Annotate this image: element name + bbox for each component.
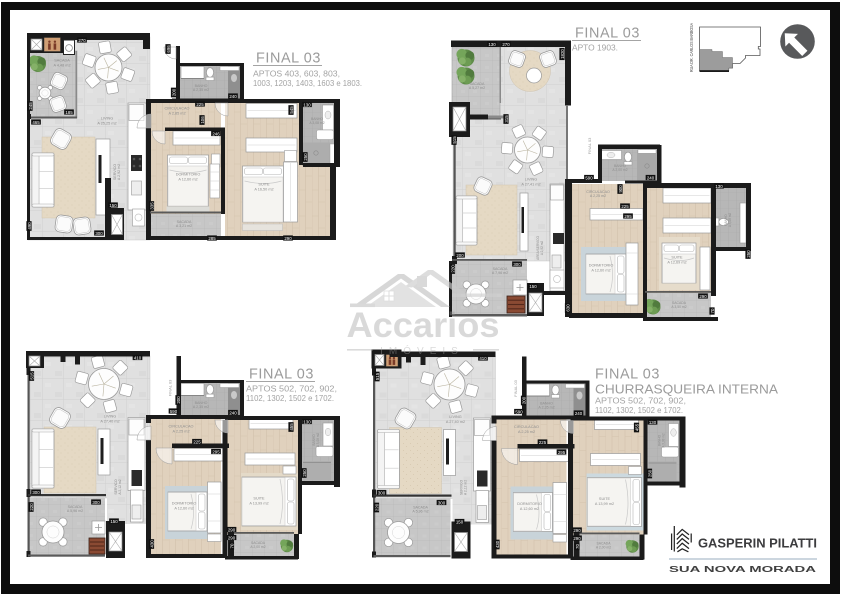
svg-text:A 2,25 m2: A 2,25 m2: [590, 194, 606, 198]
svg-text:696: 696: [166, 45, 171, 53]
svg-text:130: 130: [715, 184, 723, 189]
svg-text:DORMITORIO: DORMITORIO: [172, 502, 197, 506]
svg-text:290: 290: [573, 528, 581, 533]
svg-text:220: 220: [29, 503, 34, 511]
svg-text:A 3,50 m2: A 3,50 m2: [671, 305, 686, 309]
svg-text:295: 295: [212, 449, 220, 454]
svg-text:CHURRASQUEIRA INTERNA: CHURRASQUEIRA INTERNA: [595, 382, 778, 397]
svg-text:A 2,12 m2: A 2,12 m2: [118, 479, 122, 494]
svg-text:LIVING: LIVING: [104, 415, 116, 419]
svg-text:APTOS 502, 702, 902,: APTOS 502, 702, 902,: [595, 396, 686, 406]
svg-text:200: 200: [521, 396, 526, 404]
svg-text:315: 315: [504, 115, 509, 123]
svg-text:IMÓVEIS: IMÓVEIS: [380, 344, 464, 357]
svg-text:240: 240: [575, 411, 583, 416]
svg-text:A 27,40 m2: A 27,40 m2: [446, 420, 465, 424]
svg-text:225: 225: [539, 440, 547, 445]
svg-text:130: 130: [303, 102, 311, 107]
svg-text:GASPERIN PILATTI: GASPERIN PILATTI: [698, 536, 817, 551]
svg-text:A 12,60 m2: A 12,60 m2: [178, 177, 197, 181]
svg-text:225: 225: [193, 439, 201, 444]
svg-text:225: 225: [621, 204, 629, 209]
svg-text:300: 300: [438, 500, 446, 505]
svg-text:410: 410: [479, 356, 487, 361]
svg-text:A 4,48 m2: A 4,48 m2: [53, 63, 70, 67]
svg-text:A 13,99 m2: A 13,99 m2: [249, 501, 268, 505]
svg-text:A 2,00 m2: A 2,00 m2: [250, 545, 265, 549]
svg-text:290: 290: [699, 294, 707, 299]
svg-text:515: 515: [375, 372, 380, 380]
svg-text:285: 285: [208, 236, 216, 241]
svg-text:A 12,60 m2: A 12,60 m2: [591, 268, 610, 272]
svg-text:70: 70: [575, 544, 580, 549]
svg-text:SACADA: SACADA: [470, 82, 485, 86]
svg-text:BANHO: BANHO: [195, 401, 208, 405]
svg-text:250: 250: [303, 153, 308, 161]
svg-text:295: 295: [624, 214, 632, 219]
svg-text:1102, 1302, 1502 e 1702.: 1102, 1302, 1502 e 1702.: [246, 393, 334, 403]
svg-text:270: 270: [502, 42, 510, 47]
svg-text:A 2,25 m2: A 2,25 m2: [518, 430, 535, 434]
svg-text:335: 335: [149, 202, 154, 210]
svg-text:290: 290: [284, 236, 292, 241]
svg-text:FINAL 03: FINAL 03: [249, 367, 314, 383]
svg-text:185: 185: [65, 110, 73, 115]
svg-text:SACADA: SACADA: [413, 505, 428, 509]
svg-text:250: 250: [647, 469, 652, 477]
svg-text:240: 240: [229, 410, 237, 415]
svg-text:APTOS 403, 603, 803,: APTOS 403, 603, 803,: [253, 69, 340, 79]
svg-text:A 2,85 m2: A 2,85 m2: [168, 111, 185, 115]
svg-text:A 2,35 m2: A 2,35 m2: [193, 405, 209, 409]
svg-text:200: 200: [171, 88, 176, 96]
svg-text:300: 300: [513, 262, 521, 267]
svg-text:SUITE: SUITE: [671, 256, 683, 260]
svg-text:CIRCULACAO: CIRCULACAO: [514, 425, 539, 429]
svg-text:270: 270: [78, 38, 86, 43]
svg-text:590: 590: [170, 409, 178, 414]
svg-text:APTO 1903.: APTO 1903.: [572, 43, 618, 53]
svg-text:220: 220: [450, 265, 455, 273]
svg-text:DORMITORIO: DORMITORIO: [589, 264, 614, 268]
svg-text:Accarios: Accarios: [347, 306, 500, 345]
svg-text:430: 430: [495, 540, 500, 548]
svg-text:A 12,69 m2: A 12,69 m2: [667, 260, 686, 264]
svg-text:455: 455: [289, 423, 294, 431]
svg-text:106: 106: [200, 116, 205, 124]
svg-text:70: 70: [229, 543, 234, 548]
svg-text:300: 300: [92, 500, 100, 505]
svg-text:FINAL 03: FINAL 03: [587, 137, 592, 155]
svg-text:CIRCULACAO: CIRCULACAO: [586, 190, 610, 194]
svg-text:200: 200: [176, 396, 181, 404]
svg-text:SUA NOVA MORADA: SUA NOVA MORADA: [669, 565, 817, 574]
svg-text:SACADA: SACADA: [54, 59, 70, 63]
svg-text:150: 150: [109, 203, 117, 208]
svg-text:590: 590: [585, 175, 593, 180]
svg-text:A 13,99 m2: A 13,99 m2: [595, 502, 614, 506]
svg-text:CIRCULACAO: CIRCULACAO: [169, 425, 194, 429]
svg-text:130: 130: [303, 419, 311, 424]
svg-text:A 2,12 m2: A 2,12 m2: [464, 480, 468, 495]
svg-text:FINAL 03: FINAL 03: [575, 26, 640, 42]
svg-text:1003, 1203, 1403, 1603 e 1803.: 1003, 1203, 1403, 1603 e 1803.: [253, 78, 362, 88]
svg-text:SUITE: SUITE: [253, 497, 265, 501]
svg-text:290: 290: [573, 536, 581, 541]
svg-text:A 12,60 m2: A 12,60 m2: [520, 507, 539, 511]
svg-text:225: 225: [196, 102, 204, 107]
svg-text:FINAL 03: FINAL 03: [256, 51, 321, 67]
svg-text:A 3,08 m2: A 3,08 m2: [661, 433, 665, 448]
svg-text:LIVING: LIVING: [449, 415, 461, 419]
svg-text:455: 455: [634, 423, 639, 431]
svg-text:465: 465: [32, 120, 40, 125]
svg-text:A 2,25 m2: A 2,25 m2: [172, 429, 189, 433]
svg-text:A 2,92 m2: A 2,92 m2: [117, 164, 121, 180]
svg-text:A 3,08 m2: A 3,08 m2: [309, 121, 324, 125]
svg-text:200: 200: [456, 253, 464, 258]
svg-text:246: 246: [212, 131, 220, 136]
svg-text:A 5,27 m2: A 5,27 m2: [469, 86, 485, 90]
svg-text:A 2,35 m2: A 2,35 m2: [538, 406, 554, 410]
svg-text:RUA DR. CARLOS BARBOSA: RUA DR. CARLOS BARBOSA: [689, 23, 694, 72]
svg-text:CIRCULACAO: CIRCULACAO: [165, 107, 190, 111]
svg-text:BANHO: BANHO: [195, 84, 208, 88]
svg-text:130: 130: [649, 420, 657, 425]
svg-text:490: 490: [27, 222, 32, 230]
svg-text:410: 410: [134, 355, 142, 360]
svg-text:A 2,92 m2: A 2,92 m2: [540, 241, 544, 256]
svg-text:LIVING: LIVING: [101, 117, 113, 121]
svg-text:A 7,96 m2: A 7,96 m2: [492, 271, 508, 275]
svg-text:A 27,40 m2: A 27,40 m2: [100, 419, 119, 423]
svg-text:220: 220: [374, 503, 379, 511]
svg-text:A 5,96 m2: A 5,96 m2: [412, 510, 428, 514]
svg-text:150: 150: [456, 519, 464, 524]
svg-text:245: 245: [28, 102, 33, 110]
svg-text:300: 300: [378, 490, 386, 495]
svg-text:630: 630: [565, 304, 570, 312]
svg-text:A 5,96 m2: A 5,96 m2: [67, 509, 83, 513]
svg-text:545: 545: [289, 106, 294, 114]
svg-text:290: 290: [228, 527, 236, 532]
svg-text:A 3,21 m2: A 3,21 m2: [176, 224, 192, 228]
svg-text:150: 150: [110, 519, 118, 524]
svg-text:SACADA: SACADA: [493, 267, 508, 271]
svg-text:FINAL 03: FINAL 03: [513, 379, 518, 397]
svg-text:130: 130: [488, 42, 496, 47]
svg-text:APTOS 502, 702, 902,: APTOS 502, 702, 902,: [246, 384, 337, 394]
svg-text:DORMITORIO: DORMITORIO: [517, 502, 542, 506]
svg-text:515: 515: [452, 136, 457, 144]
svg-text:250: 250: [746, 250, 751, 258]
svg-text:SACADA: SACADA: [177, 220, 192, 224]
svg-text:250: 250: [302, 469, 307, 477]
svg-text:A 2,00 m2: A 2,00 m2: [612, 168, 627, 172]
svg-text:BANHO: BANHO: [540, 401, 553, 405]
svg-text:A 2,35 m2: A 2,35 m2: [193, 88, 209, 92]
svg-text:590: 590: [515, 409, 523, 414]
svg-text:295: 295: [558, 450, 566, 455]
svg-text:FINAL 03: FINAL 03: [168, 379, 173, 397]
svg-text:A 2,00 m2: A 2,00 m2: [596, 546, 611, 550]
svg-text:FINAL 03: FINAL 03: [595, 367, 660, 383]
svg-text:A 3,08 m2: A 3,08 m2: [728, 213, 732, 228]
svg-text:A 12,60 m2: A 12,60 m2: [174, 506, 193, 510]
svg-text:A 3,08 m2: A 3,08 m2: [316, 433, 320, 448]
svg-text:SACADA: SACADA: [68, 505, 83, 509]
svg-text:A 27,41 m2: A 27,41 m2: [521, 182, 540, 186]
svg-text:900: 900: [618, 185, 623, 193]
svg-text:150: 150: [529, 284, 537, 289]
svg-text:240: 240: [229, 94, 237, 99]
svg-text:1102, 1302, 1502 e 1702.: 1102, 1302, 1502 e 1702.: [595, 405, 683, 415]
svg-text:300: 300: [95, 231, 103, 236]
svg-text:SUITE: SUITE: [258, 183, 270, 187]
svg-text:515: 515: [29, 372, 34, 380]
svg-text:1820: 1820: [560, 49, 565, 59]
svg-text:240: 240: [647, 175, 655, 180]
svg-text:430: 430: [149, 540, 154, 548]
svg-text:300: 300: [32, 490, 40, 495]
svg-text:DORMITORIO: DORMITORIO: [176, 173, 201, 177]
svg-text:LIVING: LIVING: [525, 178, 537, 182]
svg-text:290: 290: [228, 535, 236, 540]
svg-text:A 25,25 m2: A 25,25 m2: [97, 121, 116, 125]
svg-text:SUITE: SUITE: [599, 497, 611, 501]
svg-text:SERVICO: SERVICO: [113, 164, 117, 180]
svg-text:A 16,50 m2: A 16,50 m2: [254, 187, 273, 191]
svg-text:70: 70: [710, 308, 715, 313]
